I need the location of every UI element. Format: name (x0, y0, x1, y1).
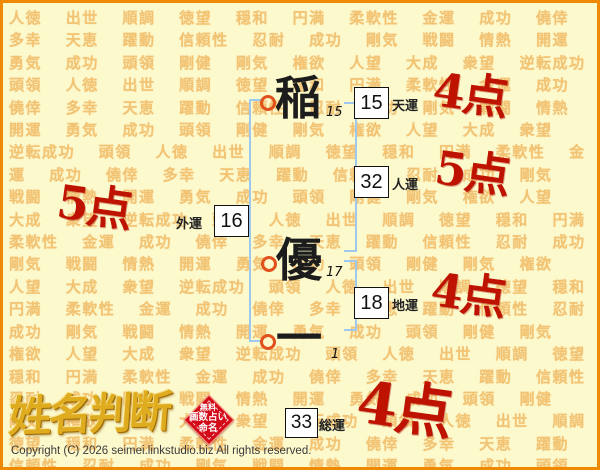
jinun-score: 5点 (432, 144, 512, 200)
chiun-value-box: 18 (354, 287, 389, 319)
name-char-3: 一 (276, 315, 322, 361)
char-marker-icon (260, 334, 276, 350)
badge-text: 無料 画数占い 命名 (182, 393, 234, 445)
gaiun-value-box: 16 (214, 205, 249, 237)
gaiun-score: 5点 (54, 178, 134, 234)
chiun-score: 4点 (428, 266, 508, 322)
tenun-value-box: 15 (354, 87, 389, 119)
gaiun-label: 外運 (176, 213, 202, 232)
name-char-1: 稲 (275, 75, 321, 121)
souun-label: 総運 (319, 415, 345, 434)
tenun-score: 4点 (430, 66, 510, 122)
site-logo: 姓名判断 (7, 388, 171, 442)
name-char-2: 優 (276, 237, 322, 283)
chiun-label: 地運 (392, 295, 418, 314)
souun-value-box: 33 (285, 408, 318, 438)
souun-score: 4点 (353, 373, 455, 444)
stroke-count-3: 1 (331, 347, 339, 362)
copyright-text: Copyright (C) 2026 seimei.linkstudio.biz… (11, 445, 311, 457)
free-naming-badge: 無料 画数占い 命名 (182, 393, 234, 445)
jinun-value-box: 32 (354, 166, 389, 198)
stroke-count-1: 15 (326, 105, 343, 120)
jinun-label: 人運 (392, 174, 418, 193)
tenun-label: 天運 (392, 95, 418, 114)
stroke-count-2: 17 (326, 265, 343, 280)
badge-line-2: 画数占い (189, 413, 227, 424)
seimei-handan-result: 人徳 出世 順調 徳望 穏和 円満 柔軟性 金運 成功 僥倖 多幸 天恵 躍動 … (0, 0, 600, 470)
badge-line-3: 命名 (198, 424, 217, 435)
gaiun-bracket (249, 99, 263, 342)
char-marker-icon (261, 256, 277, 272)
char-marker-icon (260, 95, 276, 111)
